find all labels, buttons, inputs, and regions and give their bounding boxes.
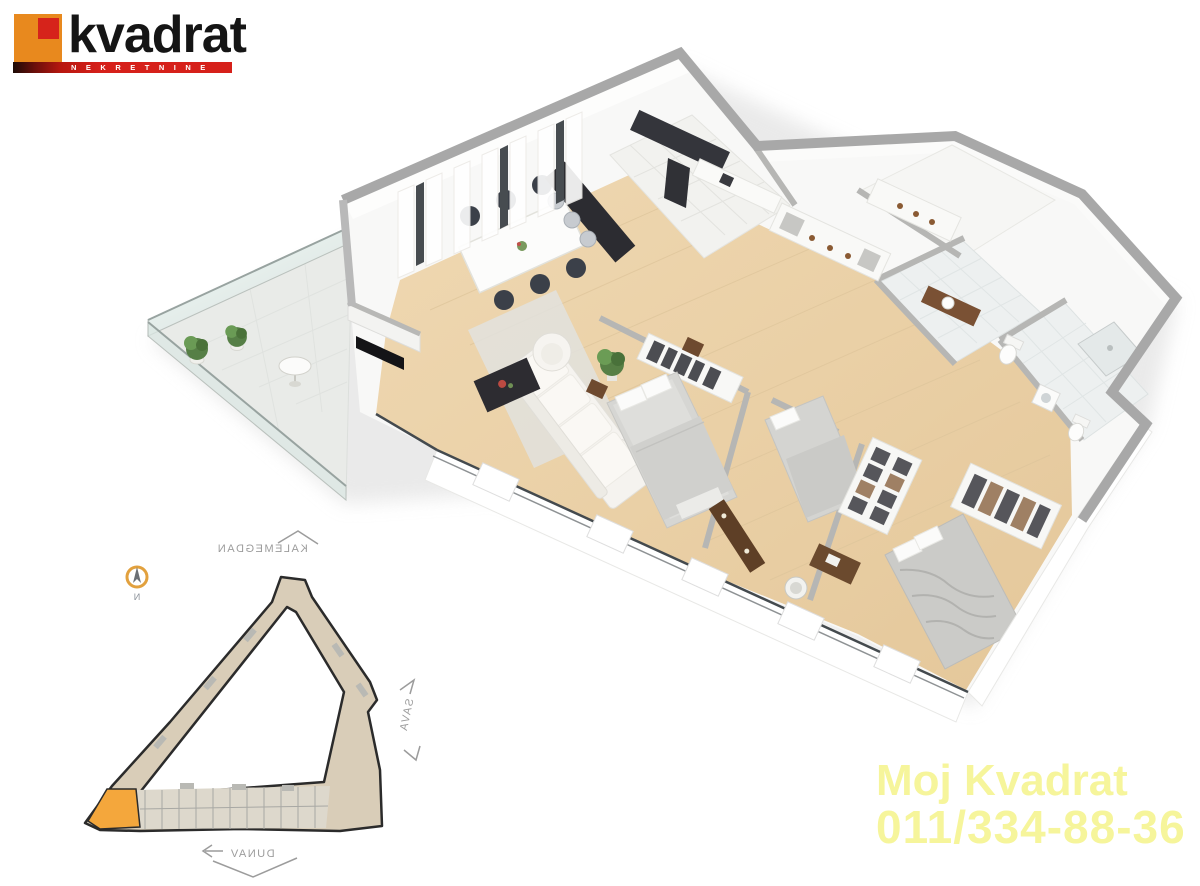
map-label-sava: SAVA: [398, 698, 417, 733]
kvadrat-logo-red-square: [38, 18, 59, 39]
kvadrat-logo-icon: [14, 14, 62, 62]
real-estate-listing-image: N KALEMEGDAN SAVA DUNAV kvadrat: [0, 0, 1200, 886]
contact-name: Moj Kvadrat: [876, 758, 1186, 804]
contact-phone: 011/334-88-36: [876, 804, 1186, 852]
apartment: [343, 53, 1176, 722]
brand-tagline-bar: NEKRETNINE: [13, 62, 232, 73]
map-label-dunav: DUNAV: [229, 848, 274, 860]
compass-label: N: [134, 592, 141, 602]
floor-plan-svg: N KALEMEGDAN SAVA DUNAV: [0, 0, 1200, 886]
highlighted-unit: [88, 789, 140, 829]
sava-arrow-down-icon: [404, 746, 420, 760]
brand-tagline: NEKRETNINE: [13, 62, 232, 73]
map-label-kalemegdan: KALEMEGDAN: [216, 543, 307, 555]
site-map: N KALEMEGDAN SAVA DUNAV: [85, 531, 420, 877]
contact-block: Moj Kvadrat 011/334-88-36: [876, 758, 1186, 852]
brand-name: kvadrat: [68, 4, 246, 66]
compass-icon: N: [127, 567, 147, 602]
armchair: [533, 333, 571, 371]
sava-arrow-up-icon: [400, 680, 414, 694]
kvadrat-logo: kvadrat NEKRETNINE: [12, 8, 258, 78]
bedroom2-desk-chair: [785, 577, 807, 599]
